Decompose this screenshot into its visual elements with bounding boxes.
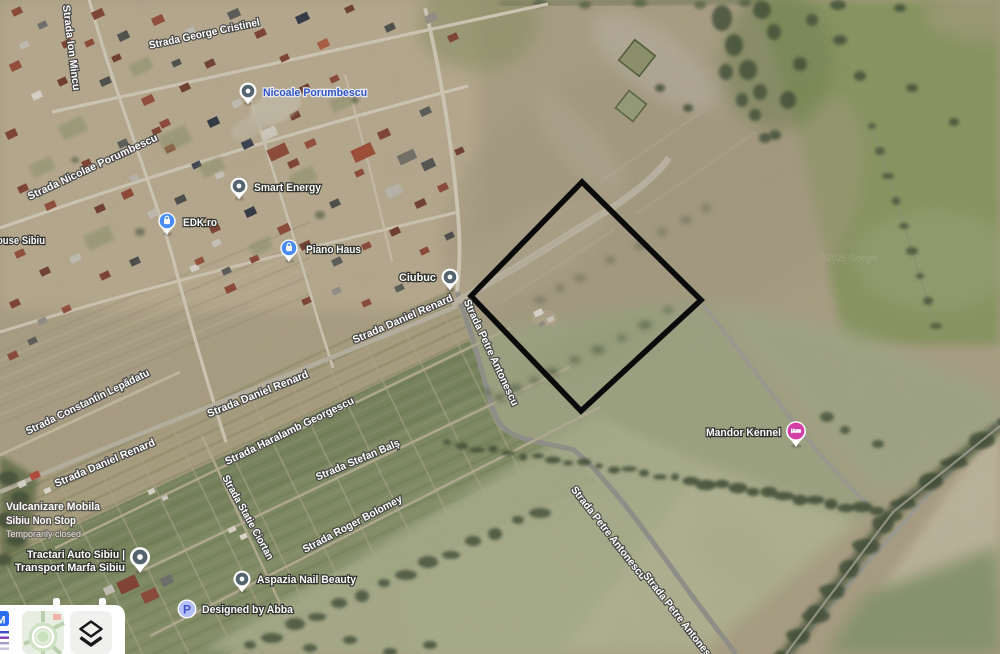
svg-text:Piano Haus: Piano Haus (306, 244, 361, 256)
svg-text:Aspazia Nail Beauty: Aspazia Nail Beauty (257, 574, 357, 586)
svg-text:M: M (0, 615, 6, 627)
svg-text:Smart Energy: Smart Energy (254, 182, 322, 194)
svg-text:Transport Marfa Sibiu: Transport Marfa Sibiu (15, 562, 125, 574)
svg-text:Designed by Abba: Designed by Abba (202, 604, 294, 616)
svg-text:Ciubuc: Ciubuc (399, 272, 436, 284)
svg-text:Sibiu Non Stop: Sibiu Non Stop (6, 515, 76, 527)
svg-text:©2025 Google: ©2025 Google (820, 253, 878, 263)
svg-text:EDK.ro: EDK.ro (183, 217, 217, 229)
svg-text:Mandor Kennel: Mandor Kennel (706, 427, 781, 439)
svg-text:Temporarily closed: Temporarily closed (6, 529, 81, 540)
svg-text:ouse Sibiu: ouse Sibiu (0, 235, 45, 247)
svg-text:Tractari Auto Sibiu |: Tractari Auto Sibiu | (27, 549, 125, 561)
svg-text:Nicoale Porumbescu: Nicoale Porumbescu (263, 87, 367, 99)
svg-text:Vulcanizare Mobila: Vulcanizare Mobila (6, 501, 101, 513)
